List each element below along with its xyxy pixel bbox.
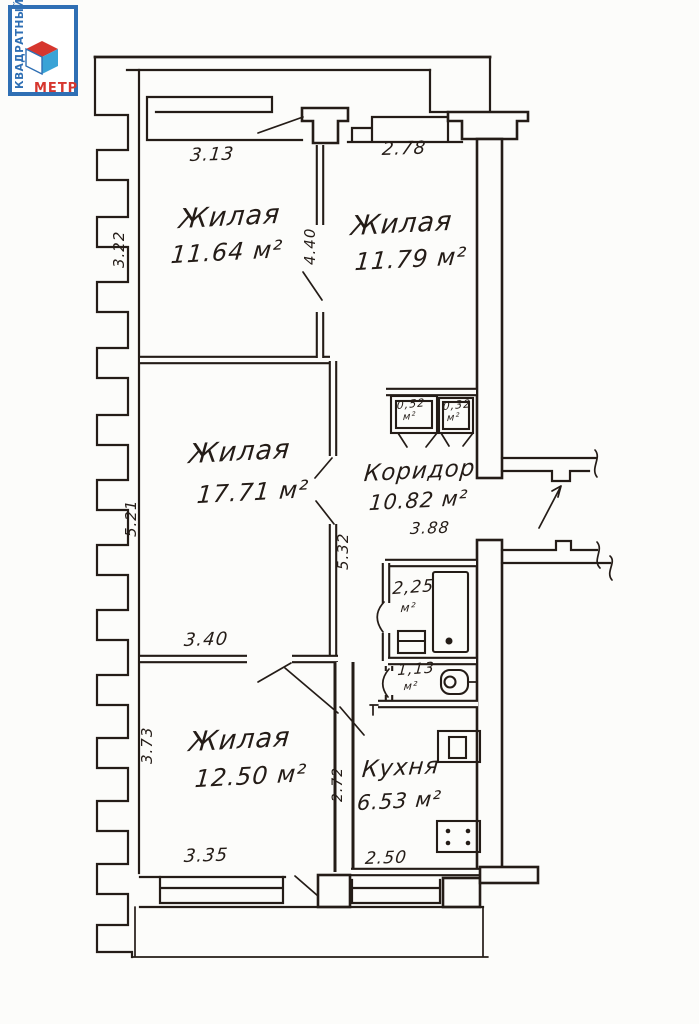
living1-window xyxy=(147,97,302,140)
room-area-corridor: 10.82 м² xyxy=(368,488,469,514)
room-area-bathroom: 2,25 xyxy=(392,578,435,598)
entrance-door-arrow xyxy=(539,486,561,528)
wall-flange xyxy=(448,112,528,139)
room-label-corridor: Коридор xyxy=(363,457,476,486)
room-label-living2: Жилая xyxy=(350,208,454,240)
floor-plan-drawing xyxy=(0,0,699,1024)
room-unit-closet2: м² xyxy=(447,413,461,425)
room-area-living1: 11.64 м² xyxy=(170,237,284,267)
dim-living4-top-width: 3.40 xyxy=(183,630,229,650)
room-unit-wc: м² xyxy=(403,680,418,692)
bearing-wall-upper xyxy=(477,139,502,478)
floor-plan-page: КВАДРАТНЫЙ МЕТР xyxy=(0,0,699,1024)
bottom-right-wall-block xyxy=(480,867,538,883)
dim-living1-depth: 3.22 xyxy=(112,231,127,268)
balcony-door-line xyxy=(295,876,318,896)
room-area-kitchen: 6.53 м² xyxy=(356,789,442,815)
dim-corridor-length: 3.88 xyxy=(409,520,450,537)
window-annotation-line xyxy=(258,117,303,133)
dim-living3-depth: 5.21 xyxy=(124,500,139,537)
room-label-kitchen: Кухня xyxy=(361,755,440,782)
kitchen-sink xyxy=(438,731,480,762)
bottom-right-pier xyxy=(443,878,480,907)
bathtub xyxy=(433,572,468,652)
room-label-living1: Жилая xyxy=(178,201,282,233)
stove xyxy=(437,821,480,852)
dim-living4-depth: 3.73 xyxy=(140,727,155,764)
living4-window xyxy=(160,877,283,903)
room-unit-bathroom: м² xyxy=(400,601,417,614)
room-area-living2: 11.79 м² xyxy=(354,244,468,274)
dim-living2-depth: 4.40 xyxy=(303,228,318,265)
dim-living1-width: 3.13 xyxy=(189,145,235,165)
balcony-outline xyxy=(133,907,488,957)
room-area-wc: 1,13 xyxy=(397,660,435,678)
bottom-exterior-wall xyxy=(133,867,538,957)
bottom-pier xyxy=(318,875,350,907)
room-area-closet1: 0,52 xyxy=(397,397,426,411)
room-area-closet2: 0,32 xyxy=(443,398,472,412)
dim-living4-width: 3.35 xyxy=(183,846,229,866)
entrance-walls xyxy=(502,450,612,580)
dim-kitchen-width: 2.50 xyxy=(364,850,408,869)
room-label-living4: Жилая xyxy=(188,724,292,756)
window-pier xyxy=(302,108,348,143)
dim-living2-width: 2.78 xyxy=(381,139,427,159)
room-label-living3: Жилая xyxy=(188,436,292,468)
room-unit-closet1: м² xyxy=(403,412,417,424)
room-area-living3: 17.71 м² xyxy=(196,477,310,507)
room-area-living4: 12.50 м² xyxy=(194,761,308,791)
toilet xyxy=(441,670,477,694)
kitchen-window xyxy=(352,880,440,903)
dim-kitchen-depth: 2.72 xyxy=(331,767,345,802)
dim-corridor-depth: 5.32 xyxy=(336,533,351,570)
top-exterior-wall xyxy=(95,57,490,112)
bathroom-sink xyxy=(398,631,425,653)
